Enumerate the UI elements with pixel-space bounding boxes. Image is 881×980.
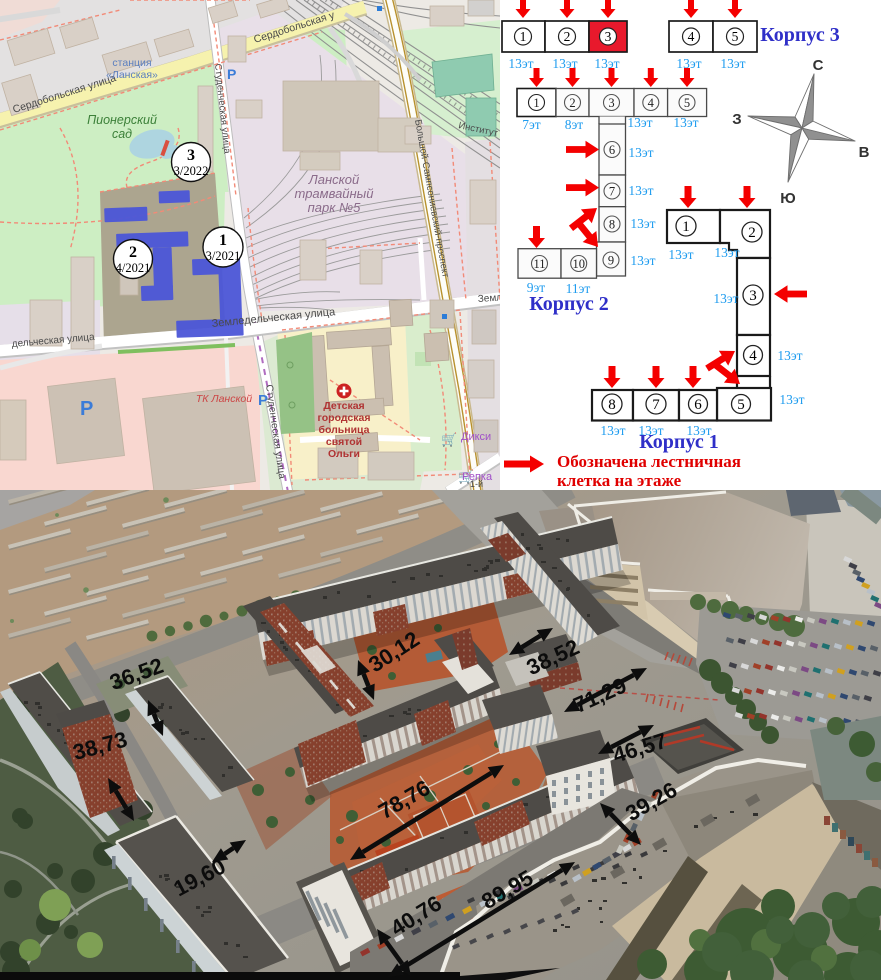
svg-text:Детская: Детская [323,400,364,412]
svg-text:3: 3 [608,96,614,110]
svg-text:парк №5: парк №5 [308,200,361,215]
svg-text:Обозначена лестничная: Обозначена лестничная [557,452,741,471]
svg-text:13эт: 13эт [714,245,739,260]
svg-text:13эт: 13эт [777,348,802,363]
svg-text:🛒: 🛒 [441,432,457,447]
svg-text:3: 3 [605,29,612,44]
svg-text:4: 4 [749,348,757,364]
svg-text:ТК Ланской: ТК Ланской [196,393,252,405]
svg-text:13эт: 13эт [628,183,653,198]
svg-text:P: P [80,398,93,420]
svg-text:1: 1 [219,232,227,249]
svg-text:2: 2 [569,96,575,110]
svg-text:13эт: 13эт [594,56,619,71]
svg-text:9: 9 [608,254,614,268]
svg-text:З: З [732,111,741,128]
svg-text:1: 1 [533,96,539,110]
svg-text:больница: больница [319,424,370,436]
svg-text:сад: сад [112,127,132,141]
svg-text:8: 8 [609,218,615,232]
svg-text:В: В [859,144,870,161]
svg-text:5: 5 [684,96,690,110]
svg-text:13эт: 13эт [673,115,698,130]
svg-text:1: 1 [520,29,527,44]
svg-text:13эт: 13эт [627,115,652,130]
svg-text:Корпус 1: Корпус 1 [639,431,718,453]
svg-text:5: 5 [737,397,745,413]
svg-text:«Ланская»: «Ланская» [106,69,158,81]
svg-text:6: 6 [694,397,702,413]
svg-text:2: 2 [748,225,756,241]
svg-text:7эт: 7эт [522,117,541,132]
svg-text:Пионерский: Пионерский [87,113,157,127]
svg-text:3: 3 [187,147,195,164]
svg-text:Корпус 3: Корпус 3 [760,24,839,46]
svg-text:10: 10 [572,257,585,271]
svg-text:13эт: 13эт [628,145,653,160]
svg-text:3: 3 [749,288,757,304]
svg-text:святой: святой [326,436,362,448]
svg-text:13эт: 13эт [508,56,533,71]
svg-text:1: 1 [682,219,690,235]
svg-text:P: P [258,392,268,409]
svg-text:4/2021: 4/2021 [116,261,151,275]
svg-text:7: 7 [609,185,615,199]
svg-text:7: 7 [652,397,660,413]
svg-text:13эт: 13эт [630,216,655,231]
svg-text:4: 4 [648,96,655,110]
svg-text:6: 6 [609,143,615,157]
svg-text:13эт: 13эт [600,423,625,438]
svg-text:станция: станция [112,57,151,69]
svg-text:P: P [227,66,236,82]
svg-text:2: 2 [129,244,137,261]
svg-text:13эт: 13эт [713,291,738,306]
svg-text:Ольги: Ольги [328,448,360,460]
svg-text:Корпус 2: Корпус 2 [529,293,608,315]
svg-text:8: 8 [608,397,616,413]
svg-text:13эт: 13эт [630,253,655,268]
svg-text:11: 11 [533,257,545,271]
svg-text:13эт: 13эт [720,56,745,71]
svg-text:3/2022: 3/2022 [174,164,209,178]
svg-text:4: 4 [688,29,695,44]
svg-text:3/2021: 3/2021 [206,249,241,263]
svg-text:трамвайный: трамвайный [295,186,374,201]
svg-text:клетка на этаже: клетка на этаже [557,471,682,490]
svg-text:8эт: 8эт [565,117,584,132]
svg-text:С: С [813,57,824,74]
svg-text:Ланской: Ланской [308,172,359,187]
svg-text:13эт: 13эт [779,392,804,407]
svg-text:Дикси: Дикси [461,431,491,443]
svg-text:Репка: Репка [462,471,493,483]
svg-text:5: 5 [732,29,739,44]
svg-text:2: 2 [564,29,571,44]
svg-text:13эт: 13эт [668,247,693,262]
svg-text:городская: городская [318,412,371,424]
svg-text:Ю: Ю [780,190,795,207]
